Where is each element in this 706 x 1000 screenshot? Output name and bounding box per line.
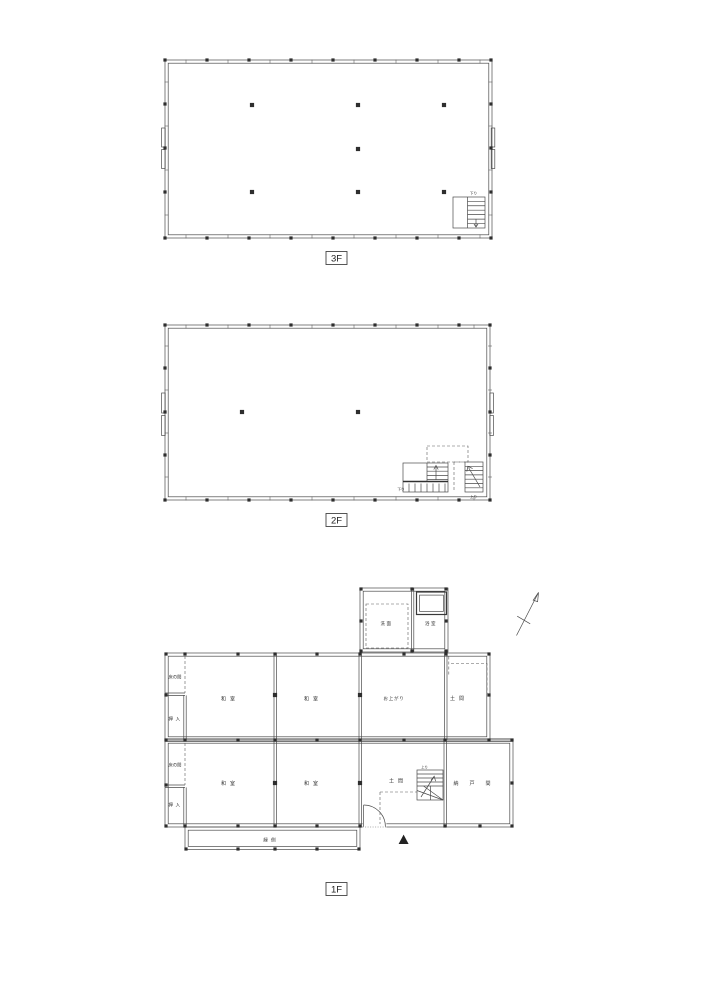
structural-post: [357, 847, 360, 850]
structural-post: [488, 366, 491, 369]
room-label-washitsu-upper-left: 和室: [221, 696, 239, 703]
wall-line: [517, 616, 530, 624]
structural-post: [487, 693, 490, 696]
floor-label-text-3f: 3F: [331, 254, 342, 265]
structural-post: [236, 824, 239, 827]
structural-post: [478, 824, 481, 827]
structural-post: [205, 323, 208, 326]
structural-post: [205, 498, 208, 501]
structural-post: [415, 323, 418, 326]
stair-up-note-2f: 上り: [470, 494, 477, 499]
structural-post: [289, 498, 292, 501]
room-label-washitsu-lower-left: 和室: [221, 780, 239, 787]
structural-post: [359, 649, 362, 652]
structural-post: [236, 652, 239, 655]
structural-post: [315, 738, 318, 741]
structural-post: [163, 453, 166, 456]
structural-post: [373, 323, 376, 326]
structural-post: [289, 236, 292, 239]
structural-post: [163, 498, 166, 501]
structural-post: [510, 781, 513, 784]
structural-post: [356, 410, 360, 414]
wall-rect: [168, 656, 487, 737]
structural-post: [183, 824, 186, 827]
room-label-engawa: 縁側: [263, 837, 278, 843]
room-label-doma-lower: 土間: [389, 778, 407, 785]
structural-post: [510, 738, 513, 741]
structural-post: [163, 410, 166, 413]
structural-post: [457, 323, 460, 326]
structural-post: [358, 693, 362, 697]
wall-rect: [168, 63, 489, 235]
stair-1f: [417, 770, 443, 800]
blueprint-canvas: 下り 3F 下り 上り 2F 洗面 浴室 床の間 押入 和室 和室 お上がり 土…: [0, 0, 706, 1000]
structural-post: [273, 824, 276, 827]
structural-post: [358, 781, 362, 785]
structural-post: [442, 103, 446, 107]
room-label-oshiire-upper: 押入: [168, 716, 182, 723]
structural-post: [410, 587, 413, 590]
structural-post: [331, 323, 334, 326]
structural-post: [331, 498, 334, 501]
structural-post: [163, 146, 166, 149]
structural-post: [183, 652, 186, 655]
floor-label-1f: 1F: [326, 883, 347, 896]
structural-post: [356, 147, 360, 151]
wall-line: [517, 593, 539, 636]
structural-post: [164, 652, 167, 655]
structural-post: [444, 649, 447, 652]
room-label-nando: 納戸間: [453, 780, 501, 787]
floor-label-text-2f: 2F: [331, 516, 342, 527]
wall-rect: [360, 588, 448, 652]
structural-post: [315, 652, 318, 655]
structural-post: [163, 323, 166, 326]
structural-post: [443, 824, 446, 827]
structural-post: [273, 781, 277, 785]
room-label-doma-upper: 土間: [450, 695, 468, 702]
room-label-tokonoma-upper: 床の間: [169, 674, 182, 681]
structural-post: [247, 498, 250, 501]
room-label-yokushitsu: 浴室: [425, 620, 437, 627]
floor-label-2f: 2F: [326, 514, 347, 527]
structural-post: [487, 738, 490, 741]
structural-post: [164, 738, 167, 741]
structural-post: [331, 236, 334, 239]
structural-post: [240, 410, 244, 414]
structural-post: [457, 498, 460, 501]
wall-rect: [165, 325, 490, 500]
structural-post: [356, 190, 360, 194]
structural-post: [373, 58, 376, 61]
structural-post: [205, 236, 208, 239]
structural-post: [444, 619, 447, 622]
structural-post: [488, 453, 491, 456]
structural-post: [488, 498, 491, 501]
north-arrow: [517, 593, 539, 636]
wall-rect: [366, 604, 408, 648]
structural-post: [489, 102, 492, 105]
structural-post: [488, 323, 491, 326]
structural-post: [457, 58, 460, 61]
structural-post: [163, 366, 166, 369]
floor-label-3f: 3F: [326, 252, 347, 265]
structural-post: [205, 58, 208, 61]
structural-post: [273, 652, 276, 655]
entrance-marker: [399, 835, 409, 844]
structural-post: [163, 58, 166, 61]
structural-post: [488, 410, 491, 413]
structural-post: [250, 190, 254, 194]
structural-post: [236, 847, 239, 850]
structural-post: [415, 498, 418, 501]
room-label-oagari: お上がり: [383, 695, 404, 702]
structural-post: [358, 652, 361, 655]
structural-post: [373, 236, 376, 239]
structural-post: [487, 652, 490, 655]
structural-post: [415, 58, 418, 61]
wall-line: [417, 791, 443, 801]
structural-post: [315, 847, 318, 850]
floor-label-text-1f: 1F: [331, 885, 342, 896]
structural-post: [356, 103, 360, 107]
structural-post: [457, 236, 460, 239]
stair-down-note-3f: 下り: [470, 191, 477, 196]
structural-post: [163, 102, 166, 105]
structural-post: [164, 783, 167, 786]
stair-up-note-1f: 上り: [421, 765, 428, 770]
structural-post: [273, 693, 277, 697]
stair-down-note-2f: 下り: [397, 487, 404, 492]
structural-post: [489, 190, 492, 193]
structural-post: [489, 58, 492, 61]
structural-post: [410, 649, 413, 652]
structural-post: [315, 824, 318, 827]
structural-post: [289, 323, 292, 326]
structural-post: [164, 824, 167, 827]
floor-3f-plan: 下り 3F: [162, 58, 495, 264]
structural-post: [402, 738, 405, 741]
structural-post: [163, 236, 166, 239]
detail-path: [451, 664, 487, 695]
walls-structure-1f: [164, 587, 513, 850]
structural-post: [510, 824, 513, 827]
stair-3f: [453, 197, 485, 228]
structural-post: [443, 738, 446, 741]
structural-post: [402, 652, 405, 655]
room-label-washitsu-upper-right: 和室: [304, 696, 322, 703]
structural-post: [442, 190, 446, 194]
structural-post: [331, 58, 334, 61]
structural-post: [247, 58, 250, 61]
floor-2f-plan: 下り 上り 2F: [162, 323, 494, 526]
structural-post: [250, 103, 254, 107]
wall-rect: [420, 595, 444, 611]
structural-post: [184, 847, 187, 850]
structural-post: [444, 652, 447, 655]
structural-post: [183, 738, 186, 741]
room-label-tokonoma-lower: 床の間: [169, 762, 182, 769]
structural-post: [415, 236, 418, 239]
structural-post: [444, 587, 447, 590]
stair-2f: [403, 446, 483, 492]
structural-post: [247, 323, 250, 326]
structural-post: [358, 738, 361, 741]
structural-post: [164, 693, 167, 696]
drawing-page: 下り 3F 下り 上り 2F 洗面 浴室 床の間 押入 和室 和室 お上がり 土…: [0, 0, 706, 1000]
room-label-senmen: 洗面: [381, 620, 393, 627]
structural-post: [373, 498, 376, 501]
structural-post: [359, 587, 362, 590]
structural-post: [236, 738, 239, 741]
walls-structure-3f: [162, 58, 495, 239]
floor-1f-plan: 洗面 浴室 床の間 押入 和室 和室 お上がり 土間 床の間 押入 和室 和室 …: [164, 587, 538, 895]
structural-post: [273, 847, 276, 850]
structural-post: [489, 236, 492, 239]
structural-post: [247, 236, 250, 239]
structural-post: [163, 190, 166, 193]
wall-rect: [363, 591, 445, 649]
structural-post: [273, 738, 276, 741]
room-label-washitsu-lower-right: 和室: [304, 780, 322, 787]
structural-post: [489, 146, 492, 149]
room-label-oshiire-lower: 押入: [168, 802, 182, 809]
wall-rect: [165, 653, 490, 740]
walls-structure-2f: [162, 323, 494, 501]
wall-rect: [165, 60, 492, 238]
structural-post: [358, 824, 361, 827]
structural-post: [359, 619, 362, 622]
wall-rect: [427, 446, 468, 462]
structural-post: [289, 58, 292, 61]
